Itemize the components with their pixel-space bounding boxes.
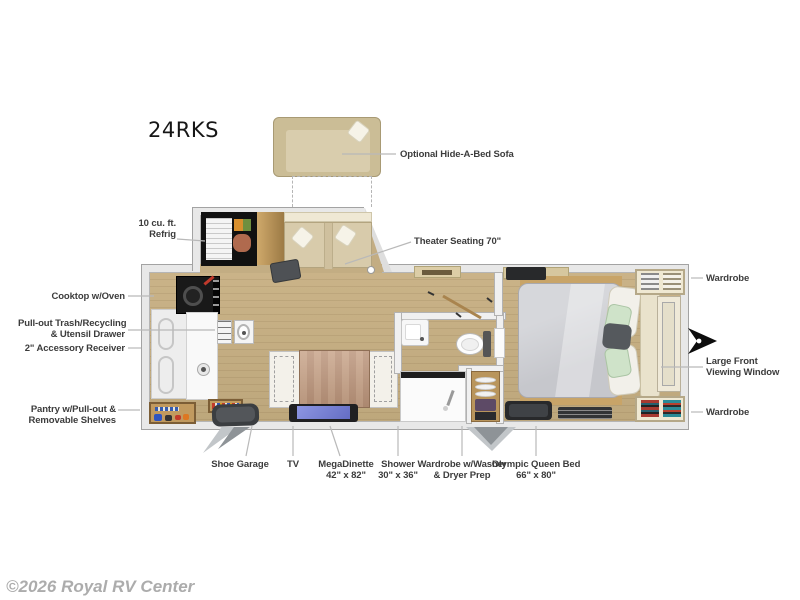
- kitchen-rear-cabinets: [151, 309, 187, 399]
- bedroom-nightstand: [506, 267, 546, 280]
- tv-screen: [297, 406, 350, 419]
- label-cooktop: Cooktop w/Oven: [30, 291, 125, 302]
- pantry-item-blue: [154, 414, 162, 421]
- bed-pillow-green-bottom: [604, 345, 633, 379]
- bedroom-floor-mat: [558, 407, 612, 419]
- pantry-item-orange: [183, 414, 189, 420]
- label-optional-sofa: Optional Hide-A-Bed Sofa: [400, 149, 514, 160]
- theater-overhead-cabinet: [284, 212, 372, 222]
- pantry-item-red: [175, 415, 181, 420]
- comforter-fold: [555, 284, 605, 397]
- wardrobe-clothes-cell: [641, 273, 659, 290]
- bathroom-pocket-door: [494, 328, 505, 358]
- towel-stack-3: [475, 391, 496, 397]
- cooktop-oven: [176, 276, 220, 314]
- bench-cushion-outline: [274, 356, 294, 402]
- sink-basin: [405, 324, 421, 340]
- appliance-dot: [242, 331, 246, 335]
- hitch-arrow-icon: [688, 328, 717, 354]
- cup-holder-dot: [367, 266, 375, 274]
- towel-stack-2: [475, 384, 496, 390]
- label-pantry: Pantry w/Pull-out & Removable Shelves: [13, 404, 116, 426]
- wardrobe-clothes-cell: [663, 273, 681, 290]
- bed-pillow-dark: [602, 323, 632, 351]
- shower: [400, 371, 466, 422]
- theater-seat-console: [324, 223, 333, 269]
- label-tv: TV: [287, 459, 299, 470]
- shoe-garage-top: [216, 406, 255, 422]
- cabinet-handle-top: [158, 318, 174, 350]
- cooktop-knob-panel: [213, 280, 219, 312]
- towel-stack-1: [475, 377, 496, 383]
- wardrobe-base: [475, 412, 496, 420]
- wardrobe-top-right: [635, 269, 685, 295]
- label-front-window: Large Front Viewing Window: [706, 356, 779, 378]
- shower-fixture: [446, 390, 454, 406]
- dinette-table: [299, 350, 370, 408]
- bench-cushion-outline: [374, 356, 392, 402]
- label-shower: Shower 30" x 36": [378, 459, 418, 481]
- front-window-glass: [662, 302, 675, 386]
- kitchen-counter: [186, 312, 218, 400]
- pantry-item-labels: [155, 407, 179, 411]
- pantry: [149, 402, 196, 424]
- sink-drain-dot: [201, 367, 206, 372]
- label-accessory-receiver: 2" Accessory Receiver: [18, 343, 125, 354]
- theater-pillow-left: [291, 226, 315, 250]
- leader-shoe-garage: [246, 426, 252, 456]
- hitch-arrow-dot: [697, 339, 702, 344]
- sofa-slide-dashed-outline: [292, 176, 372, 207]
- toilet-bowl: [456, 333, 484, 355]
- bedroom-bench: [505, 401, 552, 420]
- shower-drain: [443, 406, 448, 411]
- roof-vent: [414, 266, 461, 278]
- refrigerator-door: [206, 218, 232, 260]
- tv: [289, 404, 358, 422]
- roof-vent-slot: [422, 270, 452, 275]
- label-theater-seating: Theater Seating 70": [414, 236, 501, 247]
- wardrobe-clothes-cell: [641, 400, 659, 417]
- toilet-seat: [461, 338, 479, 351]
- cooktop-burner: [183, 286, 203, 306]
- countertop-appliance: [234, 320, 254, 344]
- shoe-garage-bench: [212, 403, 260, 427]
- label-queen-bed: Olympic Queen Bed 66" x 80": [492, 459, 581, 481]
- refrigerator-food-meat: [233, 234, 251, 252]
- bathroom-sink: [401, 319, 429, 346]
- label-wardrobe-bottom: Wardrobe: [706, 407, 749, 418]
- bedroom-divider-wall: [494, 272, 503, 316]
- label-refrig: 10 cu. ft. Refrig: [98, 218, 176, 240]
- sink-faucet-dot: [420, 337, 424, 341]
- label-dinette: MegaDinette 42" x 82": [318, 459, 373, 481]
- front-window-recess: [657, 296, 681, 392]
- wardrobe-bottom-right: [635, 396, 685, 422]
- refrigerator-food-green: [243, 219, 251, 231]
- shower-top-rail: [401, 372, 465, 378]
- cabinet-handle-bottom: [158, 356, 174, 394]
- label-trash-drawer: Pull-out Trash/Recycling & Utensil Drawe…: [18, 318, 125, 340]
- wardrobe-clothes-cell: [663, 400, 681, 417]
- dinette-bench-left: [269, 351, 300, 408]
- toilet-tank: [483, 331, 491, 357]
- floorplan-model-title: 24RKS: [148, 118, 219, 142]
- label-wardrobe-top: Wardrobe: [706, 273, 749, 284]
- floorplan-page: 24RKS: [0, 0, 800, 600]
- label-shoe-garage: Shoe Garage: [211, 459, 269, 470]
- leader-dinette: [330, 426, 340, 456]
- refrigerator-side-cabinet: [257, 212, 284, 265]
- hide-a-bed-sofa: [273, 117, 381, 177]
- bench-cushion: [509, 404, 548, 417]
- wardrobe-items: [475, 399, 496, 411]
- theater-pillow-right: [334, 224, 358, 248]
- watermark: ©2026 Royal RV Center: [6, 577, 194, 597]
- washer-prep-wardrobe: [471, 371, 500, 422]
- refrigerator: [201, 212, 257, 266]
- pullout-trash-drawer: [217, 320, 232, 344]
- pantry-item-dark: [165, 415, 172, 421]
